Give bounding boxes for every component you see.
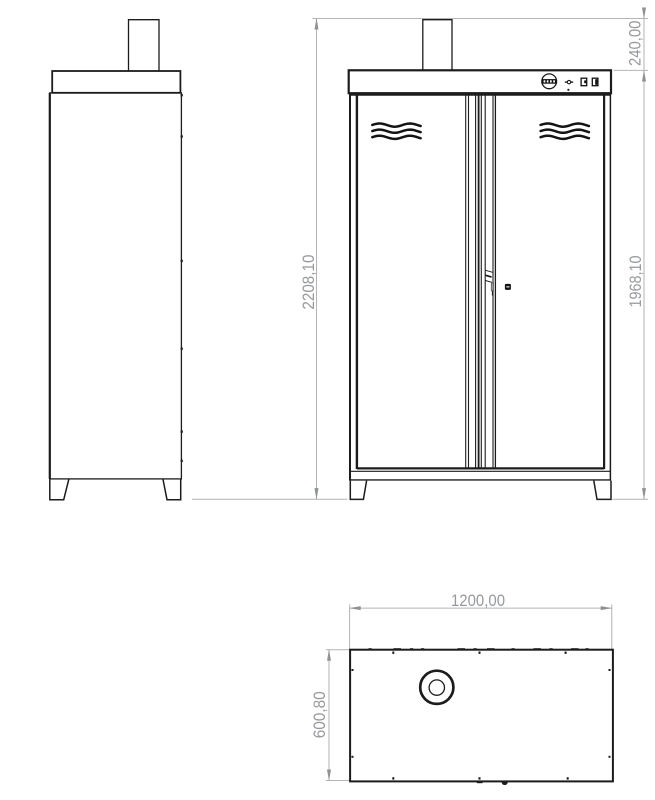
- svg-text:2208,10: 2208,10: [300, 255, 318, 310]
- svg-text:1200,00: 1200,00: [451, 592, 505, 610]
- svg-text:240,00: 240,00: [627, 21, 645, 67]
- svg-text:1968,10: 1968,10: [627, 256, 645, 308]
- svg-text:600,80: 600,80: [311, 691, 329, 738]
